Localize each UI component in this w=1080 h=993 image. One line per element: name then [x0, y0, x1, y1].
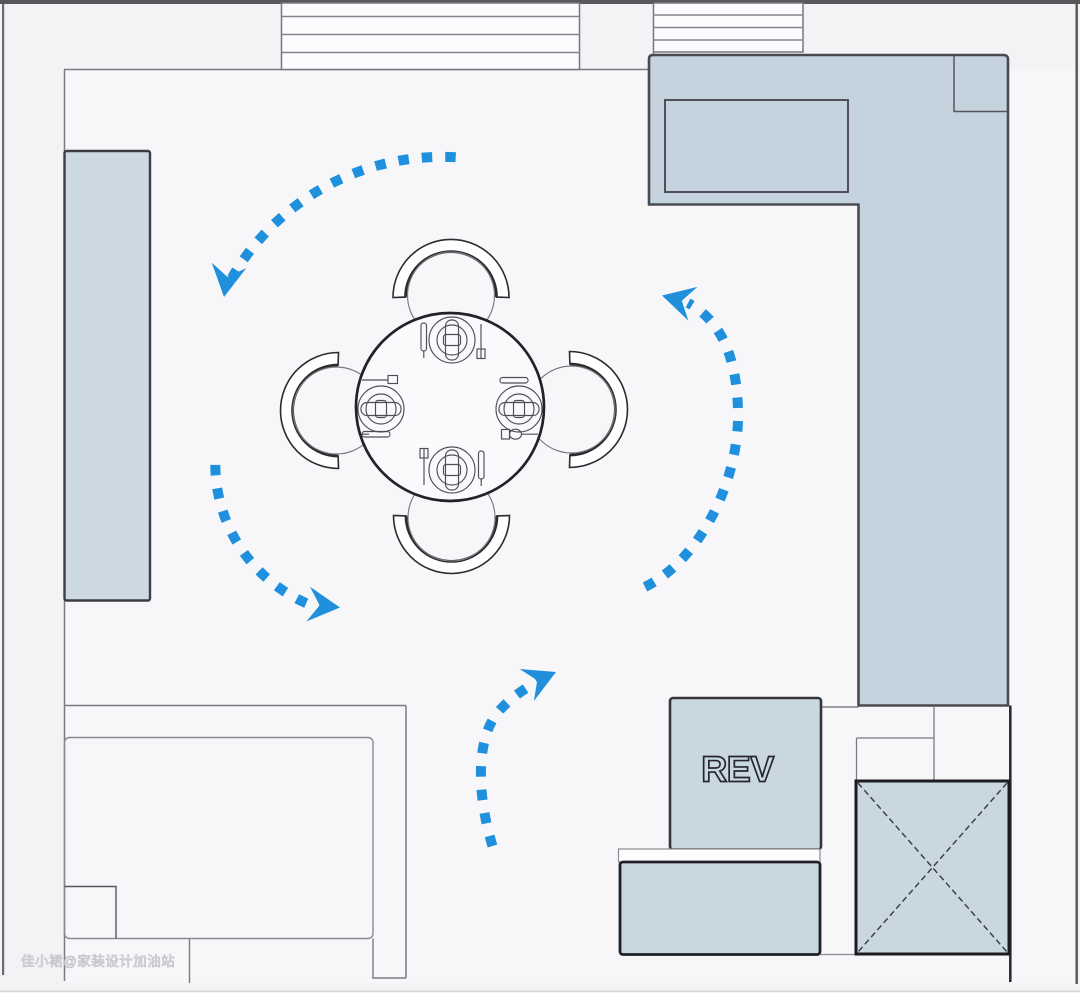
- svg-text:佳小裙@家装设计加油站: 佳小裙@家装设计加油站: [21, 953, 175, 969]
- svg-text:REV: REV: [701, 749, 774, 790]
